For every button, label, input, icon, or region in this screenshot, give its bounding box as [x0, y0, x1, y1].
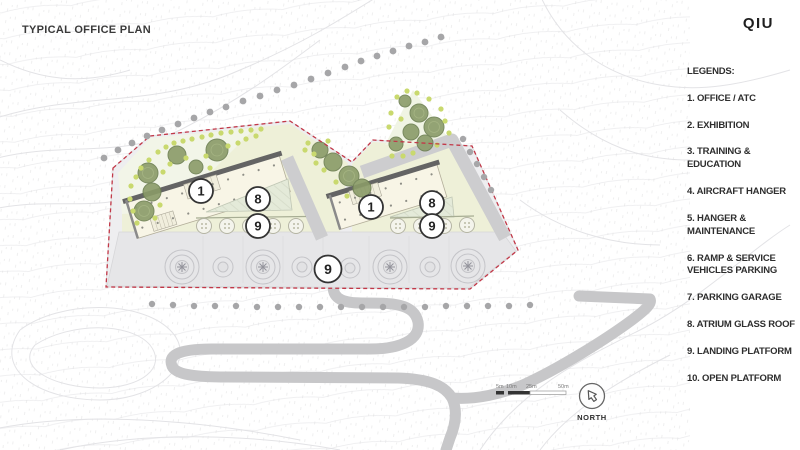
apron-platform: [107, 232, 516, 288]
key-circle-label: 8: [254, 192, 261, 207]
key-circle-label: 1: [367, 200, 374, 215]
north-indicator: NORTH: [577, 384, 607, 423]
legend-item-2: 2. EXHIBITION: [687, 120, 800, 133]
key-circle-label: 1: [197, 184, 204, 199]
legend-item-10: 10. OPEN PLATFORM: [687, 373, 800, 386]
site-plan-sheet: 1 8 9 1 8 9 9 5m 10m 25m 50m NORTH TYPIC…: [0, 0, 800, 450]
legend-item-5: 5. HANGER & MAINTENANCE: [687, 213, 800, 239]
legend-panel: LEGENDS: 1. OFFICE / ATC 2. EXHIBITION 3…: [687, 66, 800, 385]
legend-heading: LEGENDS:: [687, 66, 800, 79]
scale-tick-label: 10m: [506, 384, 517, 390]
brand-logo: QIU: [743, 15, 774, 32]
legend-item-3: 3. TRAINING & EDUCATION: [687, 146, 800, 172]
key-circle-label: 8: [428, 196, 435, 211]
scale-tick-label: 25m: [526, 384, 537, 390]
north-label: NORTH: [577, 413, 607, 422]
key-circle-label: 9: [428, 219, 435, 234]
site-plan-drawing: 1 8 9 1 8 9 9 5m 10m 25m 50m NORTH: [0, 0, 800, 450]
legend-item-7: 7. PARKING GARAGE: [687, 292, 800, 305]
legend-item-4: 4. AIRCRAFT HANGER: [687, 186, 800, 199]
legend-item-1: 1. OFFICE / ATC: [687, 93, 800, 106]
legend-item-6: 6. RAMP & SERVICE VEHICLES PARKING: [687, 253, 800, 279]
key-circle-label: 9: [324, 261, 332, 277]
legend-item-8: 8. ATRIUM GLASS ROOF: [687, 319, 800, 332]
legend-item-9: 9. LANDING PLATFORM: [687, 346, 800, 359]
scale-tick-label: 5m: [496, 384, 504, 390]
scale-tick-label: 50m: [558, 384, 569, 390]
key-circle-label: 9: [254, 219, 261, 234]
page-title: TYPICAL OFFICE PLAN: [22, 24, 151, 36]
